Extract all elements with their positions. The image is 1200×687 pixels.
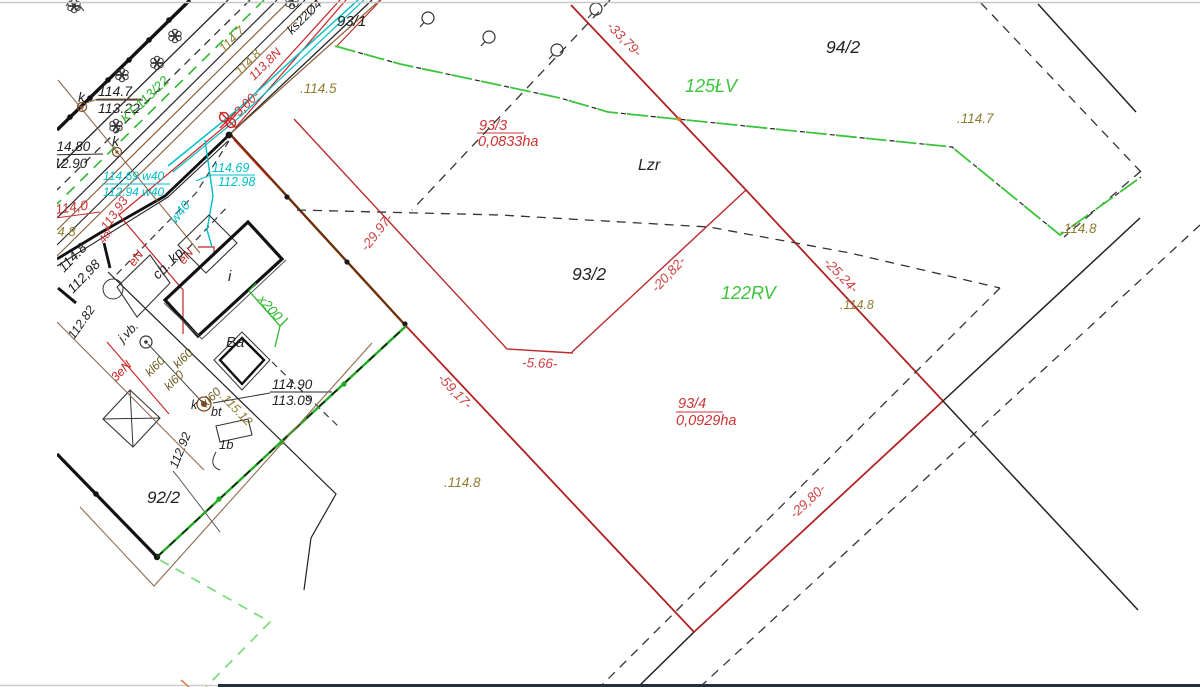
svg-text:.114.8: .114.8	[444, 475, 481, 490]
svg-text:k: k	[112, 133, 120, 149]
svg-text:k: k	[191, 398, 198, 412]
svg-text:bt: bt	[211, 405, 222, 419]
svg-text:0,0929ha: 0,0929ha	[676, 413, 736, 429]
svg-text:122RV: 122RV	[721, 283, 778, 303]
svg-text:1b: 1b	[219, 437, 233, 452]
svg-text:112.98: 112.98	[218, 175, 255, 189]
svg-text:.114.7: .114.7	[957, 111, 994, 126]
svg-text:Ba: Ba	[226, 334, 244, 351]
svg-text:114.90: 114.90	[272, 377, 313, 392]
svg-text:93/4: 93/4	[678, 396, 706, 412]
svg-text:.114.8: .114.8	[1060, 221, 1097, 236]
svg-text:114.7: 114.7	[98, 83, 133, 99]
svg-text:k: k	[78, 89, 86, 105]
svg-text:.114.8: .114.8	[840, 298, 874, 312]
svg-text:125ŁV: 125ŁV	[685, 76, 739, 96]
svg-text:-5.66-: -5.66-	[522, 355, 558, 371]
svg-text:112.94 w40: 112.94 w40	[103, 185, 164, 199]
svg-text:94/2: 94/2	[826, 37, 860, 57]
svg-text:114.69: 114.69	[212, 161, 249, 175]
svg-text:93/1: 93/1	[337, 13, 366, 30]
svg-text:0,0833ha: 0,0833ha	[478, 134, 538, 150]
svg-text:114.69 w40: 114.69 w40	[103, 169, 164, 183]
svg-text:113.09: 113.09	[272, 393, 313, 408]
svg-text:93/3: 93/3	[479, 118, 507, 134]
svg-text:93/2: 93/2	[572, 264, 606, 284]
svg-text:.114.5: .114.5	[300, 81, 337, 96]
svg-text:92/2: 92/2	[147, 488, 181, 507]
svg-text:Lzr: Lzr	[638, 157, 661, 174]
